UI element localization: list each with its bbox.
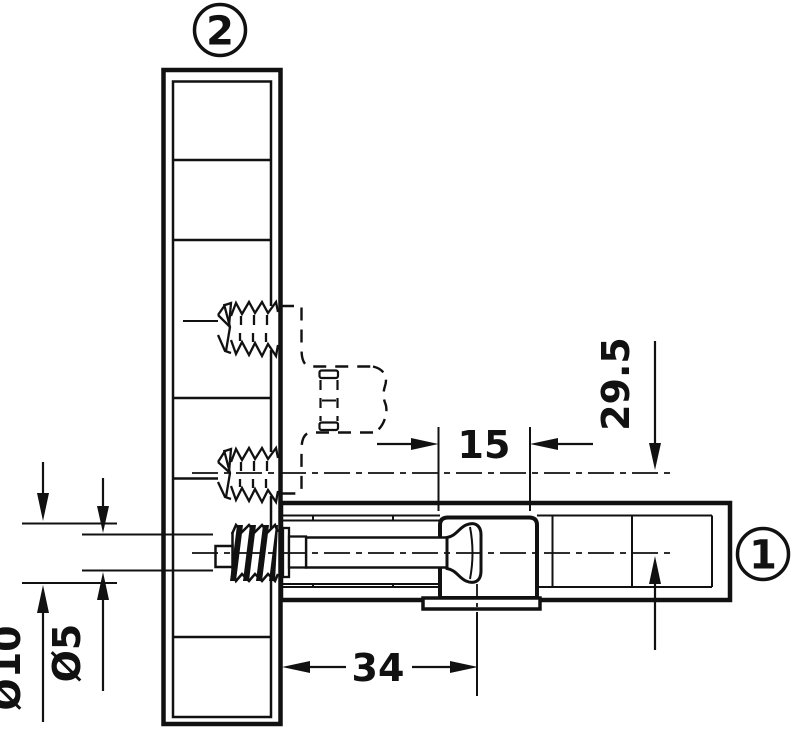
part-1-number: 1 — [749, 533, 777, 579]
label-part-1: 1 — [738, 529, 789, 580]
housing-flange — [423, 598, 540, 609]
dim-15-label: 15 — [458, 423, 511, 467]
label-part-2: 2 — [195, 5, 246, 56]
dim-dia5-label: Ø5 — [45, 624, 89, 683]
dim-dia10-label: Ø10 — [0, 625, 29, 710]
panel-2 — [164, 70, 281, 724]
euro-screw-middle — [218, 448, 278, 502]
phantom-bolt — [320, 371, 339, 431]
dim-34: 34 — [282, 612, 478, 696]
technical-drawing: 15 29.5 34 Ø10 Ø5 2 — [0, 0, 792, 730]
screw-tip — [216, 546, 233, 567]
dim-34-label: 34 — [352, 646, 405, 690]
part-2-number: 2 — [206, 9, 234, 55]
phantom-connector-outline — [281, 306, 386, 494]
dim-29-5-label: 29.5 — [594, 337, 638, 431]
drawing-canvas: 15 29.5 34 Ø10 Ø5 2 — [0, 0, 792, 730]
bolt-neck — [289, 537, 306, 568]
dim-15: 15 — [377, 423, 593, 511]
dim-29-5: 29.5 — [594, 337, 661, 650]
